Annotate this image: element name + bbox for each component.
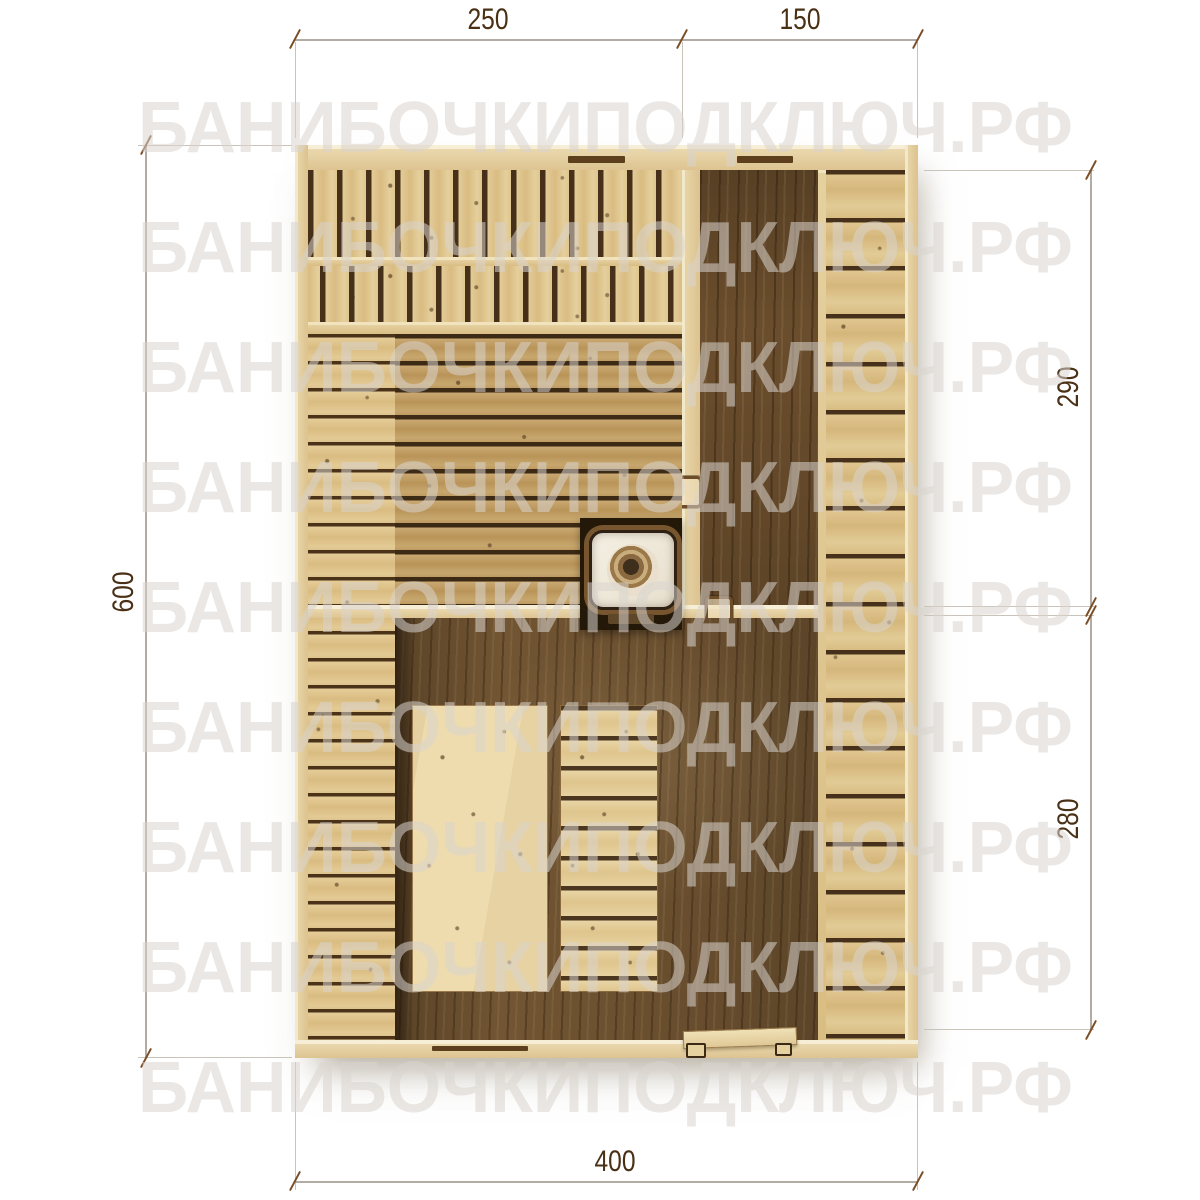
sauna-stove	[589, 530, 677, 610]
dimension-label-290: 290	[1051, 361, 1089, 413]
slatted-bench	[560, 705, 658, 992]
left-wall	[295, 145, 308, 1058]
dimension-label-400: 400	[574, 1144, 656, 1180]
stove-door	[608, 614, 654, 624]
hallway-floor	[700, 170, 818, 618]
dimension-line-left	[145, 145, 147, 1058]
extension-line	[295, 42, 296, 138]
window-marker-bottom	[432, 1046, 528, 1051]
dimension-label-280: 280	[1051, 793, 1089, 845]
dimension-label-250: 250	[447, 2, 529, 38]
extension-line	[138, 145, 292, 146]
extension-line	[138, 1057, 292, 1058]
middle-wall	[308, 605, 818, 618]
bottom-wall	[295, 1040, 918, 1058]
extension-line	[924, 1029, 1094, 1030]
extension-line	[917, 1062, 918, 1190]
terrace-deck-upper	[308, 170, 682, 257]
terrace-sauna-wall	[308, 322, 682, 334]
left-bench-planks	[308, 334, 395, 1040]
watermark-text: БАНИБОЧКИПОДКЛЮЧ.РФ	[138, 1048, 1040, 1128]
hallway-partition-wall	[682, 170, 700, 618]
dimension-line-right-upper	[1090, 170, 1092, 607]
entrance-door-hinge-left	[686, 1043, 706, 1058]
stove-chimney	[607, 544, 659, 596]
extension-line	[924, 606, 1094, 607]
dimension-label-150: 150	[759, 2, 841, 38]
floor-plan	[295, 145, 918, 1058]
extension-line	[295, 1062, 296, 1190]
window-marker-top-1	[568, 156, 625, 163]
table	[412, 705, 548, 992]
dimension-line-right-lower	[1090, 615, 1092, 1030]
terrace-rail	[308, 257, 682, 266]
terrace-deck-lower	[308, 266, 682, 322]
entrance-door-hinge-right	[775, 1043, 792, 1056]
extension-line	[924, 170, 1094, 171]
extension-line	[917, 42, 918, 138]
extension-line	[924, 615, 1094, 616]
window-marker-top-2	[737, 156, 793, 163]
right-bench-planks	[826, 170, 905, 1040]
right-strip-divider	[818, 170, 826, 1040]
right-wall	[905, 145, 918, 1058]
dimension-label-600: 600	[106, 566, 144, 618]
washroom-floor-edge	[395, 618, 412, 1040]
dimension-line-bottom	[295, 1181, 918, 1183]
dimension-line-top	[295, 39, 918, 41]
extension-line	[682, 42, 683, 138]
stove-surround	[580, 518, 682, 630]
floor-plan-canvas: 250 150 600 290 280 400 БАНИБОЧКИПОДКЛЮЧ…	[0, 0, 1200, 1200]
